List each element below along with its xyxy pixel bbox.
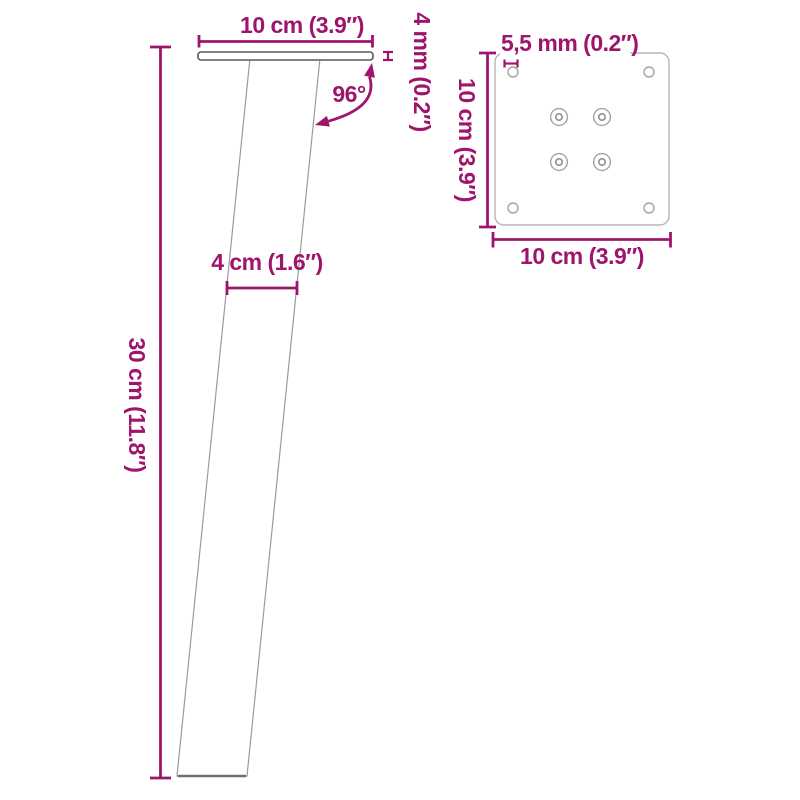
screw-hole-inner bbox=[599, 159, 605, 165]
angle-arrow-left-icon bbox=[315, 116, 330, 127]
dimension-total-height: 30 cm (11.8″) bbox=[124, 47, 171, 778]
corner-hole bbox=[644, 203, 654, 213]
dimension-angle: 96° bbox=[315, 63, 375, 127]
corner-hole bbox=[508, 67, 518, 77]
dimension-top-width: 10 cm (3.9″) bbox=[199, 12, 373, 48]
diagram-canvas: 10 cm (3.9″) 4 mm (0.2″) 96° bbox=[0, 0, 800, 800]
screw-hole-inner bbox=[599, 114, 605, 120]
dimension-label: 10 cm (3.9″) bbox=[520, 243, 644, 269]
dimension-label: 4 cm (1.6″) bbox=[211, 249, 323, 275]
screw-hole-inner bbox=[556, 159, 562, 165]
screw-hole-inner bbox=[556, 114, 562, 120]
dimension-label: 4 mm (0.2″) bbox=[409, 12, 435, 131]
mounting-plate-outline bbox=[495, 53, 669, 225]
angle-arrow-up-icon bbox=[364, 63, 375, 78]
dimension-leg-width: 4 cm (1.6″) bbox=[211, 249, 323, 295]
leg-body-outline bbox=[177, 58, 320, 776]
mounting-plate-top-view: 5,5 mm (0.2″) 10 cm (3.9″) 10 cm (3.9″) bbox=[454, 30, 671, 269]
dimension-label: 30 cm (11.8″) bbox=[124, 338, 150, 473]
dimension-label: 10 cm (3.9″) bbox=[454, 78, 480, 202]
dimension-label: 5,5 mm (0.2″) bbox=[501, 30, 638, 56]
dimension-diagram: 10 cm (3.9″) 4 mm (0.2″) 96° bbox=[0, 0, 800, 800]
dimension-label: 10 cm (3.9″) bbox=[240, 12, 364, 38]
angle-label: 96° bbox=[332, 81, 366, 107]
dimension-plate-thickness: 4 mm (0.2″) bbox=[383, 12, 435, 131]
dimension-plate-width: 10 cm (3.9″) bbox=[493, 232, 671, 269]
mounting-plate-side-profile bbox=[198, 52, 373, 60]
corner-hole bbox=[644, 67, 654, 77]
leg-side-view: 10 cm (3.9″) 4 mm (0.2″) 96° bbox=[124, 12, 435, 778]
dimension-plate-depth: 10 cm (3.9″) bbox=[454, 53, 496, 227]
corner-hole bbox=[508, 203, 518, 213]
